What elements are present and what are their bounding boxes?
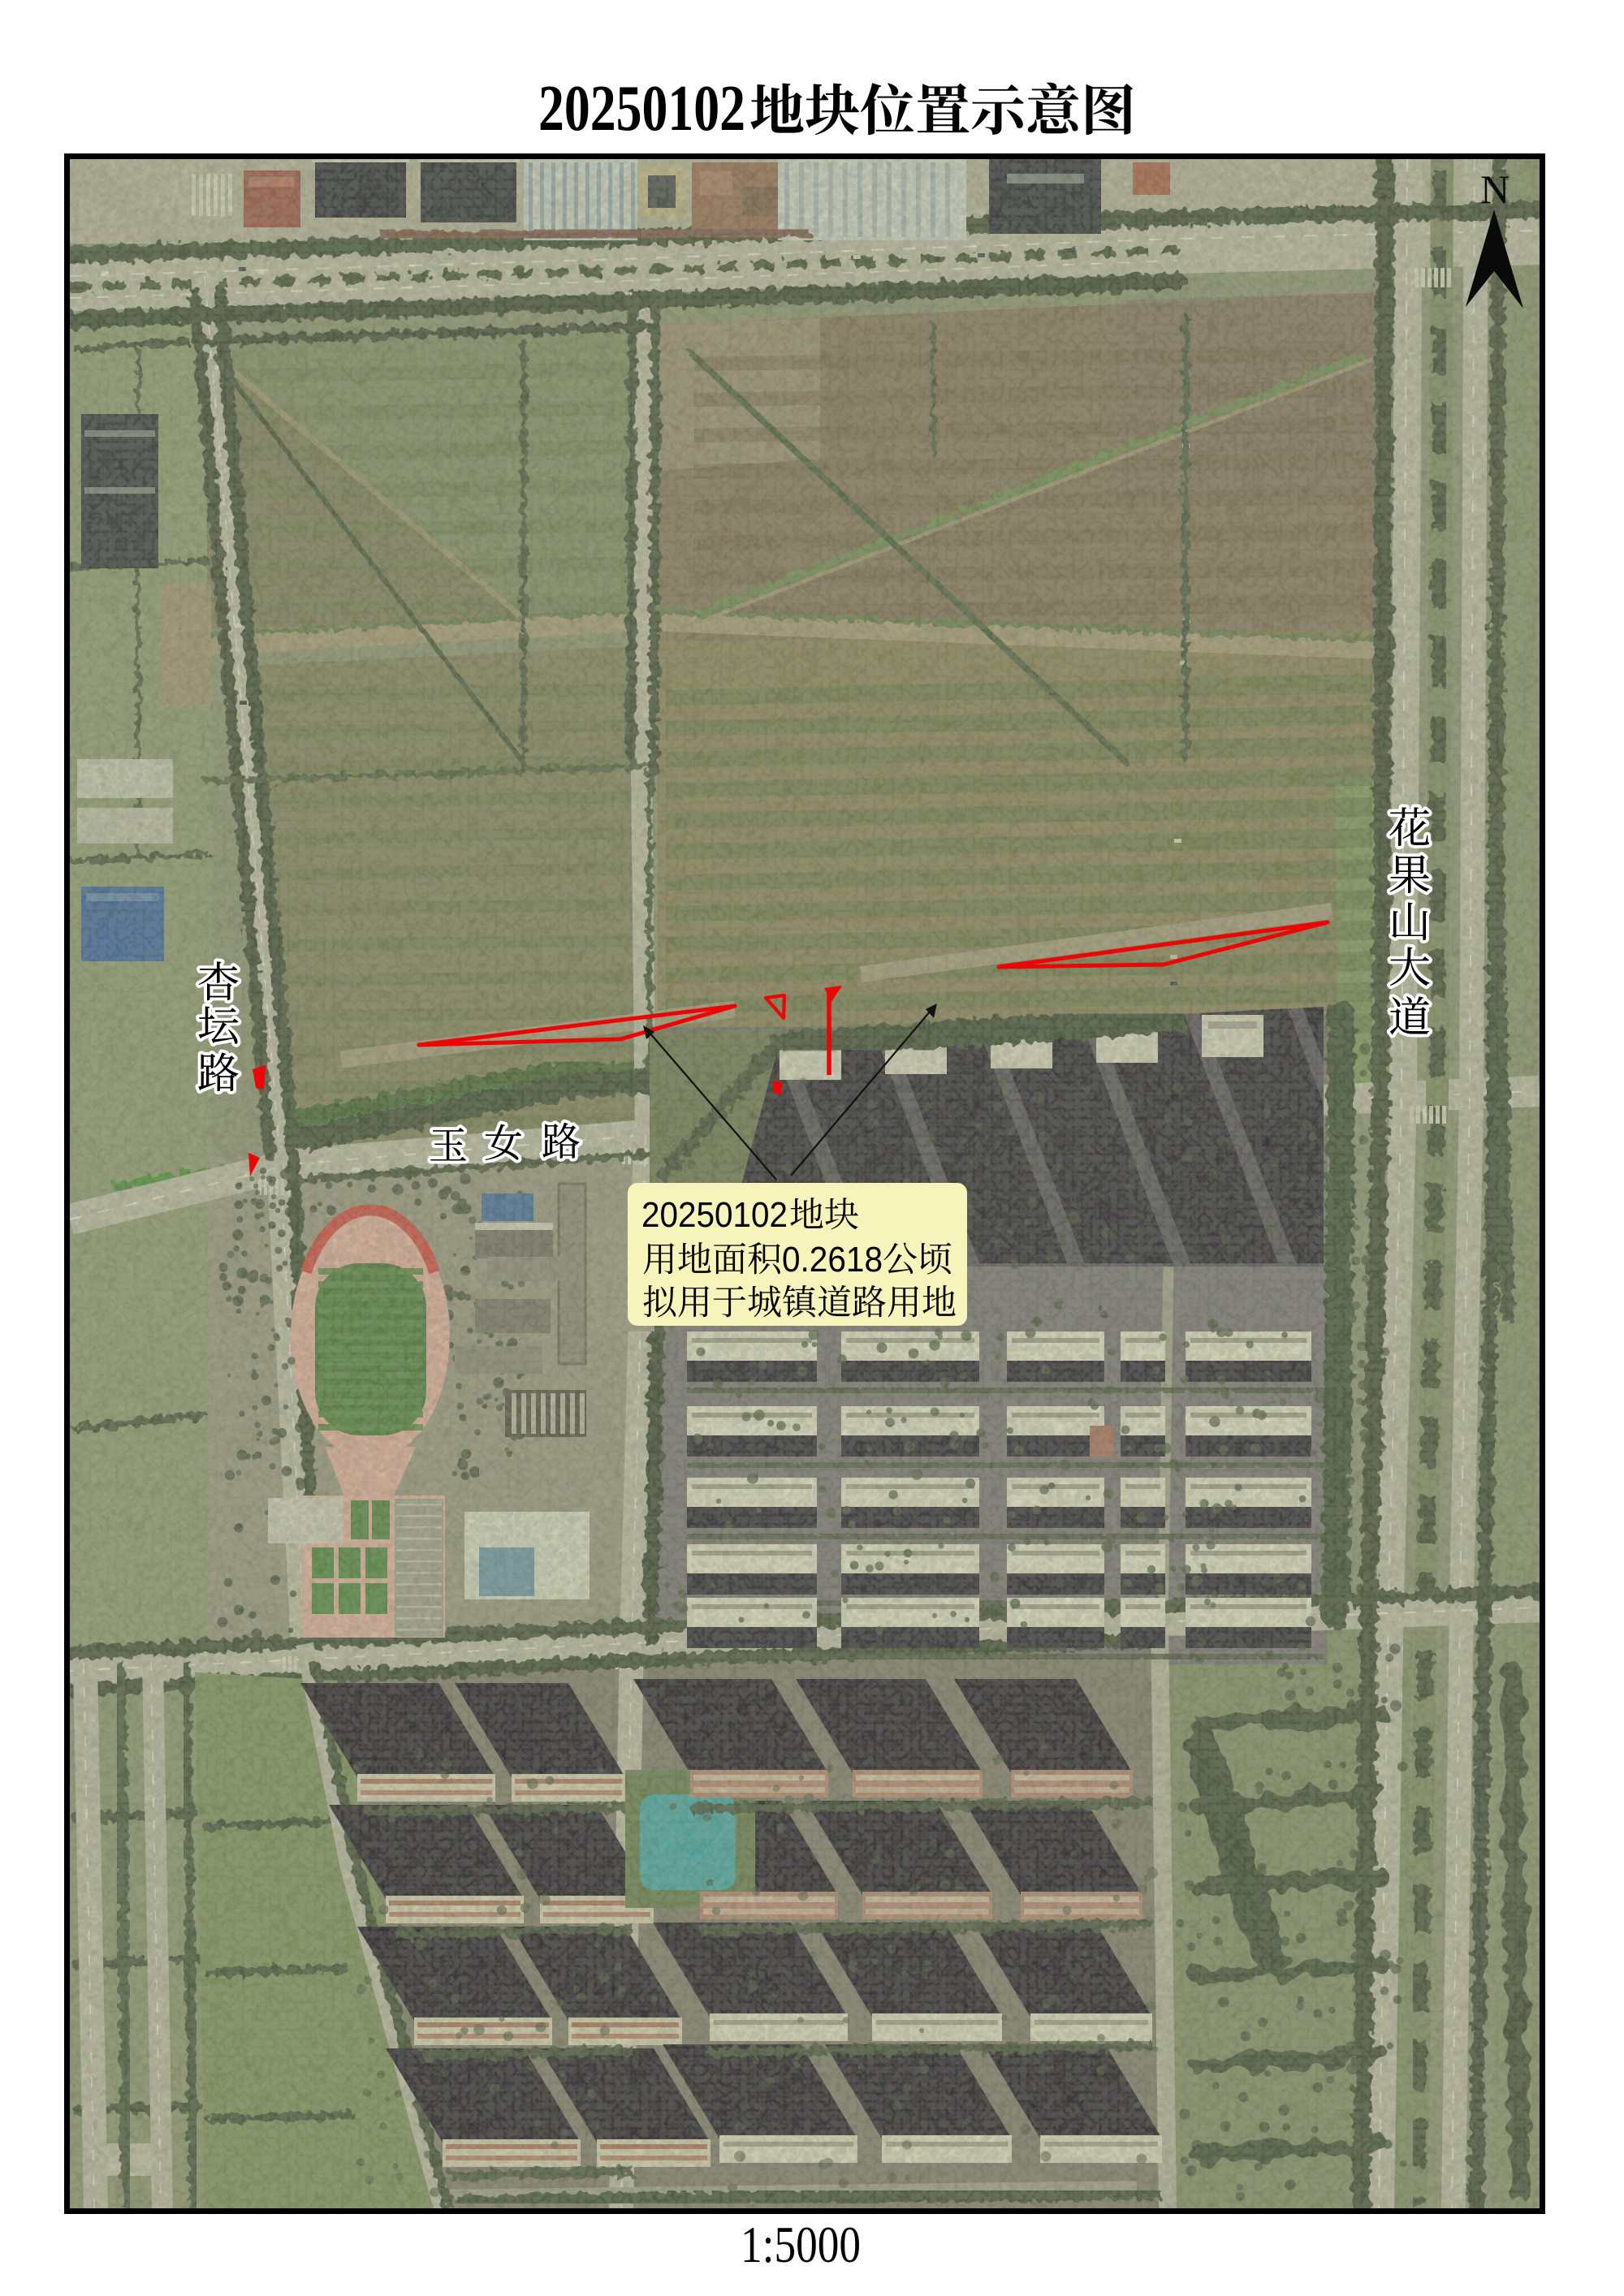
svg-text:1:5000: 1:5000 <box>741 2216 861 2273</box>
svg-text:20250102: 20250102 <box>538 73 745 145</box>
svg-text:0.2618: 0.2618 <box>782 1240 883 1280</box>
svg-text:N: N <box>1480 166 1510 212</box>
svg-text:20250102: 20250102 <box>641 1195 788 1235</box>
